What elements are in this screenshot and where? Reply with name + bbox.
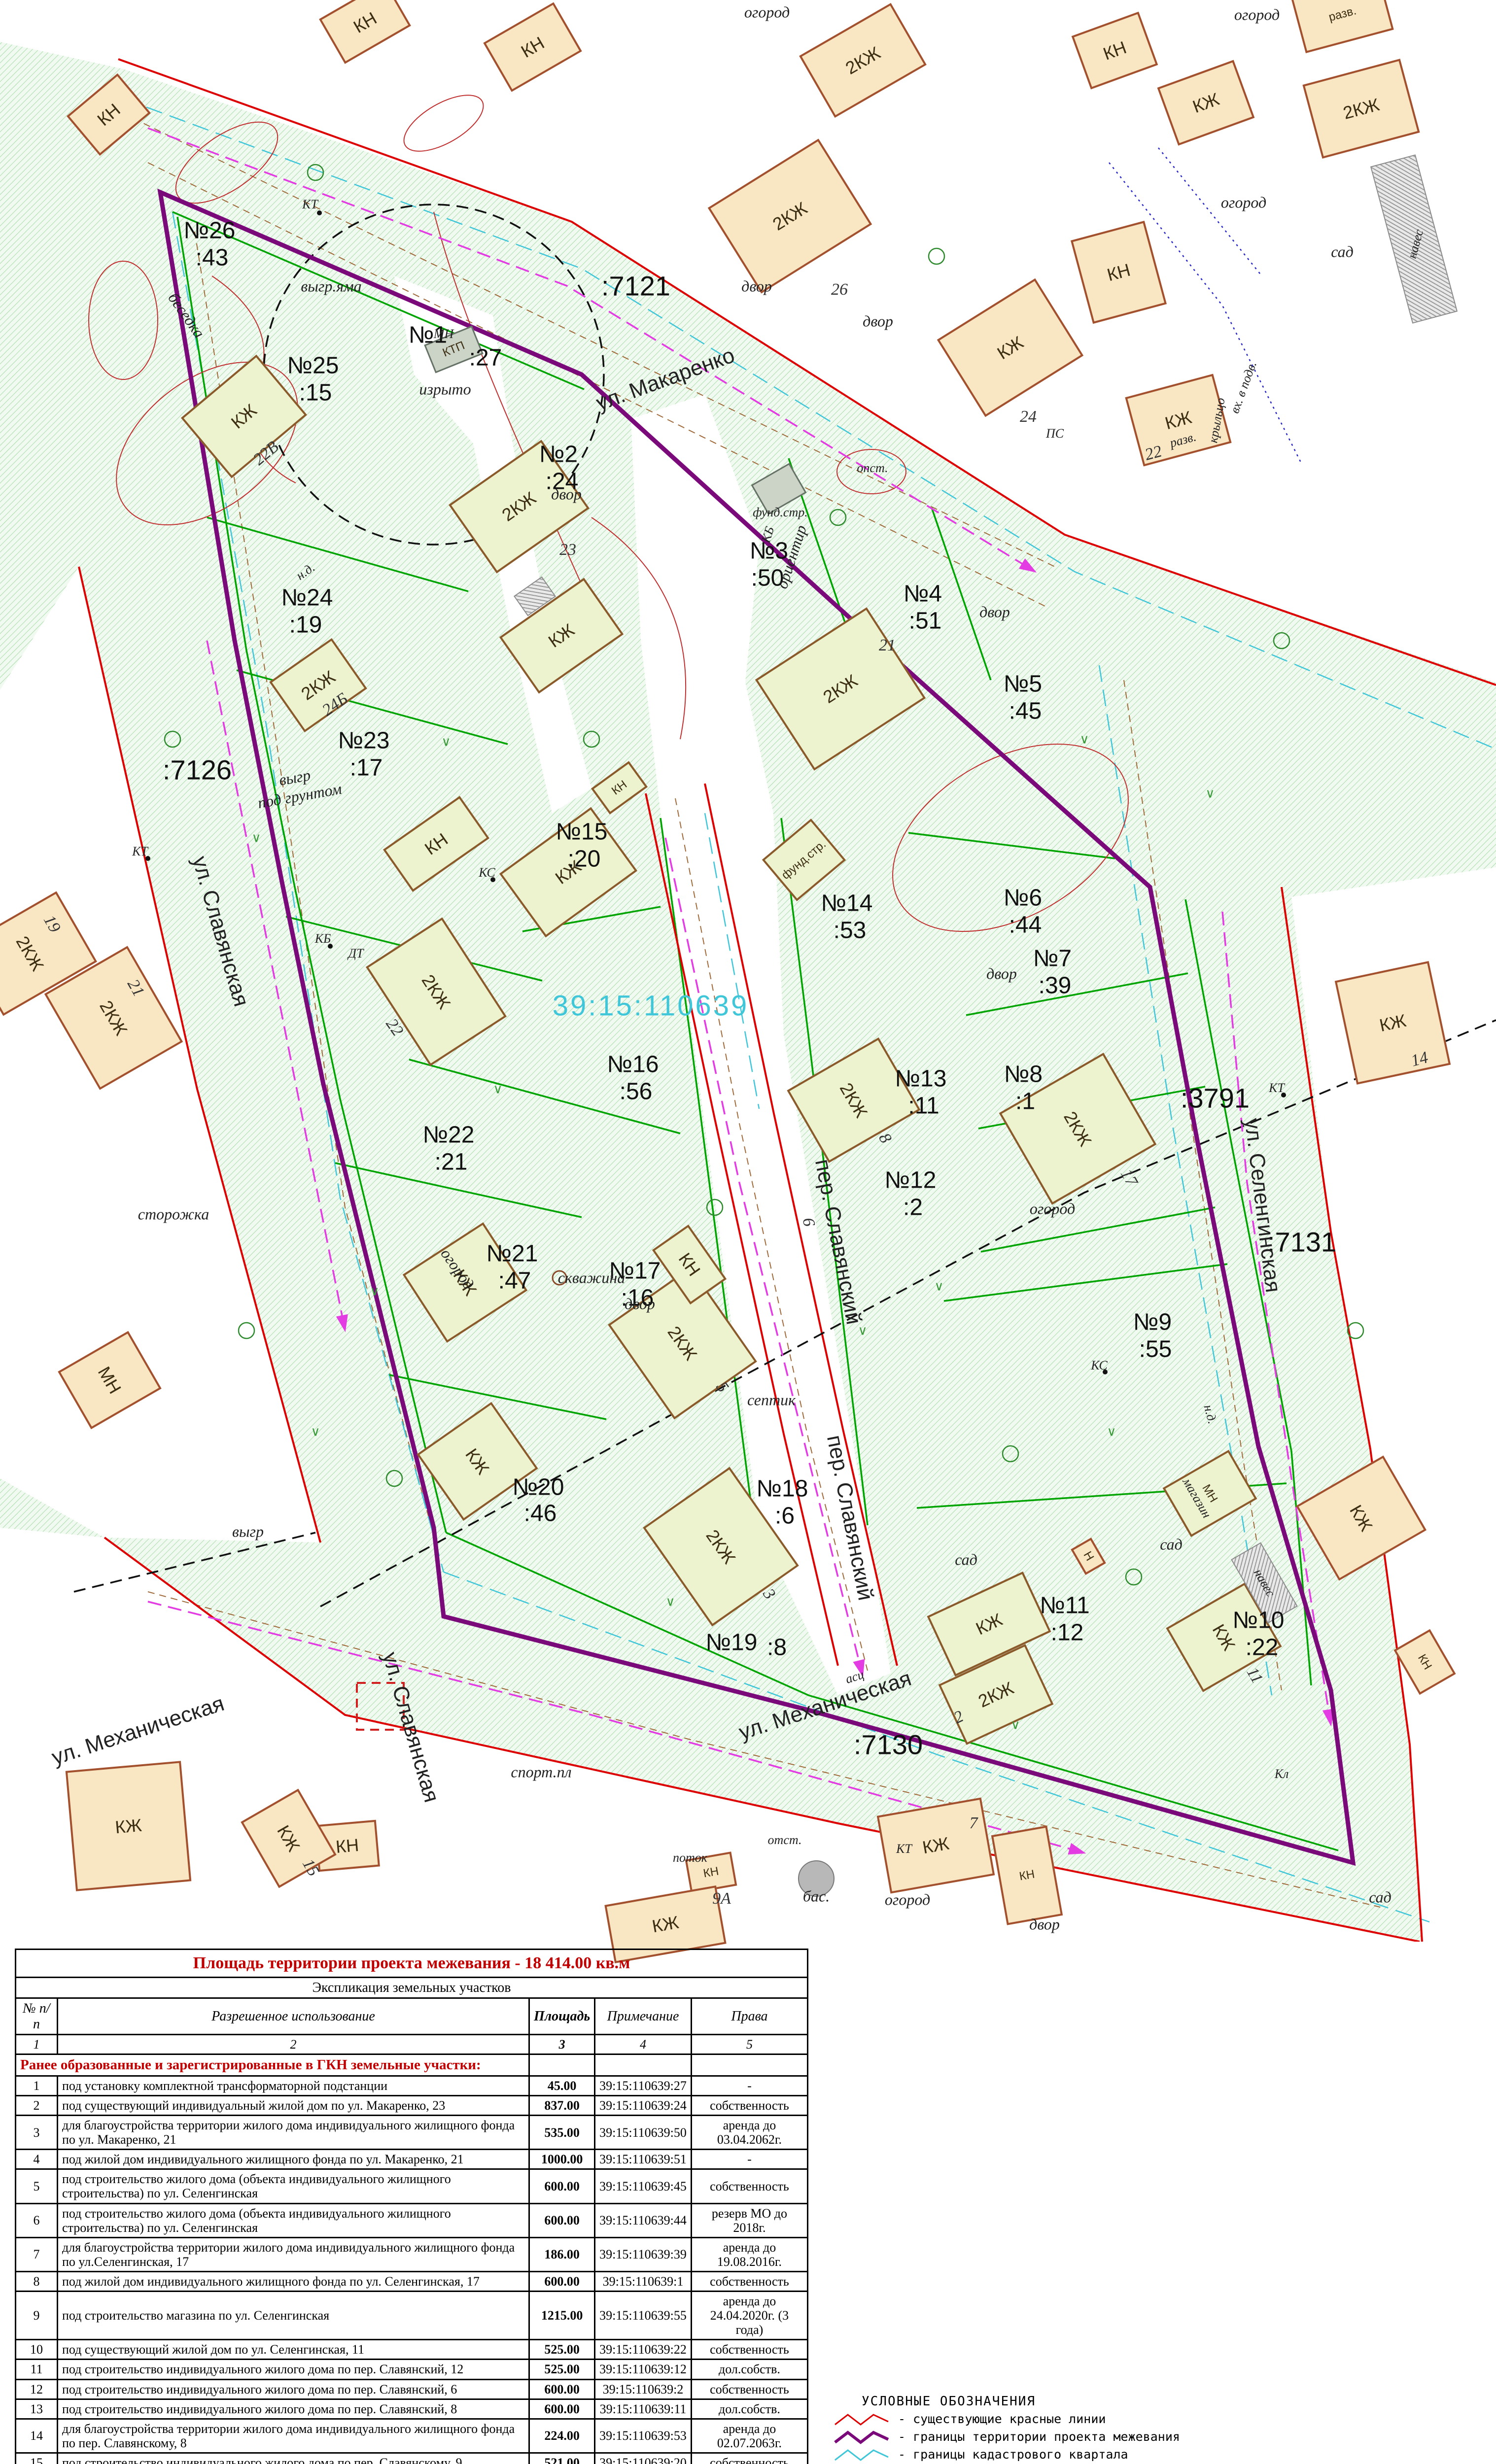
area: 1000.00 xyxy=(529,2150,595,2169)
area: 186.00 xyxy=(529,2237,595,2271)
cadastral-number: 39:15:110639:20 xyxy=(595,2453,692,2464)
cadastral-number: 39:15:110639:1 xyxy=(595,2271,692,2291)
legend-item-label: - границы кадастрового квартала xyxy=(898,2447,1128,2462)
rights: дол.собств. xyxy=(691,2360,807,2379)
rights: собственность xyxy=(691,2379,807,2399)
cadastral-number: 39:15:110639:11 xyxy=(595,2399,692,2419)
cadastral-number: 39:15:110639:24 xyxy=(595,2095,692,2115)
row-number: 11 xyxy=(16,2360,58,2379)
cadastral-number: 39:15:110639:12 xyxy=(595,2360,692,2379)
row-number: 13 xyxy=(16,2399,58,2419)
legend-item-label: - существующие красные линии xyxy=(898,2412,1106,2426)
area: 1215.00 xyxy=(529,2292,595,2340)
cadastral-number: 39:15:110639:50 xyxy=(595,2115,692,2149)
column-number: 5 xyxy=(691,2035,807,2054)
table-row: 5 под строительство жилого дома (объекта… xyxy=(16,2169,808,2203)
row-number: 5 xyxy=(16,2169,58,2203)
row-number: 2 xyxy=(16,2095,58,2115)
legend-title: УСЛОВНЫЕ ОБОЗНАЧЕНИЯ xyxy=(862,2394,1496,2409)
area: 600.00 xyxy=(529,2169,595,2203)
area: 600.00 xyxy=(529,2379,595,2399)
column-header: Примечание xyxy=(595,1998,692,2035)
cadastral-number: 39:15:110639:44 xyxy=(595,2203,692,2237)
area: 600.00 xyxy=(529,2399,595,2419)
rights: собственность xyxy=(691,2169,807,2203)
cadastral-number: 39:15:110639:55 xyxy=(595,2292,692,2340)
column-header: № п/п xyxy=(16,1998,58,2035)
cadastral-number: 39:15:110639:51 xyxy=(595,2150,692,2169)
table-row: 11 под строительство индивидуального жил… xyxy=(16,2360,808,2379)
table-row: 6 под строительство жилого дома (объекта… xyxy=(16,2203,808,2237)
area: 600.00 xyxy=(529,2203,595,2237)
permitted-use: под строительство жилого дома (объекта и… xyxy=(58,2169,529,2203)
table-title: Площадь территории проекта межевания - 1… xyxy=(16,1950,808,1978)
quarter-swatch xyxy=(833,2448,891,2461)
table-row: 12 под строительство индивидуального жил… xyxy=(16,2379,808,2399)
row-number: 1 xyxy=(16,2076,58,2095)
rights: аренда до 03.04.2062г. xyxy=(691,2115,807,2149)
legend: УСЛОВНЫЕ ОБОЗНАЧЕНИЯ - существующие крас… xyxy=(833,2394,1496,2464)
table-row: 8 под жилой дом индивидуального жилищног… xyxy=(16,2271,808,2291)
row-number: 3 xyxy=(16,2115,58,2149)
row-number: 10 xyxy=(16,2340,58,2360)
table-row: 13 под строительство индивидуального жил… xyxy=(16,2399,808,2419)
cadastral-number: 39:15:110639:27 xyxy=(595,2076,692,2095)
area: 45.00 xyxy=(529,2076,595,2095)
table-subtitle: Экспликация земельных участков xyxy=(16,1978,808,1998)
cadastral-number: 39:15:110639:45 xyxy=(595,2169,692,2203)
legend-item-label: - границы территории проекта межевания xyxy=(898,2430,1180,2444)
rights: дол.собств. xyxy=(691,2399,807,2419)
table-row: 15 под строительство индивидуального жил… xyxy=(16,2453,808,2464)
column-number: 2 xyxy=(58,2035,529,2054)
permitted-use: под строительство индивидуального жилого… xyxy=(58,2399,529,2419)
rights: аренда до 24.04.2020г. (3 года) xyxy=(691,2292,807,2340)
permitted-use: под установку комплектной трансформаторн… xyxy=(58,2076,529,2095)
row-number: 15 xyxy=(16,2453,58,2464)
cadastral-number: 39:15:110639:2 xyxy=(595,2379,692,2399)
row-number: 4 xyxy=(16,2150,58,2169)
area: 600.00 xyxy=(529,2271,595,2291)
legend-item: - границы кадастрового квартала xyxy=(833,2447,1496,2462)
table-row: Площадь территории проекта межевания - 1… xyxy=(16,1950,808,1978)
cadastral-number: 39:15:110639:39 xyxy=(595,2237,692,2271)
row-number: 8 xyxy=(16,2271,58,2291)
row-number: 7 xyxy=(16,2237,58,2271)
boundary-swatch xyxy=(833,2430,891,2443)
area: 224.00 xyxy=(529,2419,595,2453)
section-row: Ранее образованные и зарегистрированные … xyxy=(16,2054,529,2076)
sheet: { "map": { "cadastral_quarter": "39:15:1… xyxy=(0,0,1496,2464)
rights: собственность xyxy=(691,2095,807,2115)
permitted-use: под существующий индивидуальный жилой до… xyxy=(58,2095,529,2115)
pool-symbol xyxy=(799,1861,834,1896)
column-number: 3 xyxy=(529,2035,595,2054)
permitted-use: под строительство индивидуального жилого… xyxy=(58,2360,529,2379)
rights: аренда до 02.07.2063г. xyxy=(691,2419,807,2453)
area: 525.00 xyxy=(529,2360,595,2379)
table-row: 1 под установку комплектной трансформато… xyxy=(16,2076,808,2095)
cadastral-number: 39:15:110639:22 xyxy=(595,2340,692,2360)
column-header: Площадь xyxy=(529,1998,595,2035)
table-row: 7 для благоустройства территории жилого … xyxy=(16,2237,808,2271)
explication-table: Площадь территории проекта межевания - 1… xyxy=(15,1949,808,2464)
permitted-use: под строительство индивидуального жилого… xyxy=(58,2379,529,2399)
red-line-swatch xyxy=(833,2413,891,2426)
column-number: 4 xyxy=(595,2035,692,2054)
row-number: 6 xyxy=(16,2203,58,2237)
area: 837.00 xyxy=(529,2095,595,2115)
cadastral-map xyxy=(0,0,1496,1942)
rights: резерв МО до 2018г. xyxy=(691,2203,807,2237)
table-row: 9 под строительство магазина по ул. Селе… xyxy=(16,2292,808,2340)
table-row: 3 для благоустройства территории жилого … xyxy=(16,2115,808,2149)
rights: собственность xyxy=(691,2453,807,2464)
rights: аренда до 19.08.2016г. xyxy=(691,2237,807,2271)
permitted-use: под строительство индивидуального жилого… xyxy=(58,2453,529,2464)
permitted-use: под строительство магазина по ул. Селенг… xyxy=(58,2292,529,2340)
legend-item: - существующие красные линии xyxy=(833,2412,1496,2426)
permitted-use: под жилой дом индивидуального жилищного … xyxy=(58,2271,529,2291)
rights: - xyxy=(691,2076,807,2095)
table-row: 14 для благоустройства территории жилого… xyxy=(16,2419,808,2453)
table-row: Ранее образованные и зарегистрированные … xyxy=(16,2054,808,2076)
row-number: 12 xyxy=(16,2379,58,2399)
table-row: 4 под жилой дом индивидуального жилищног… xyxy=(16,2150,808,2169)
row-number: 9 xyxy=(16,2292,58,2340)
rights: собственность xyxy=(691,2340,807,2360)
table-row: 2 под существующий индивидуальный жилой … xyxy=(16,2095,808,2115)
table-row: 12345 xyxy=(16,2035,808,2054)
permitted-use: для благоустройства территории жилого до… xyxy=(58,2237,529,2271)
rights: собственность xyxy=(691,2271,807,2291)
table-row: 10 под существующий жилой дом по ул. Сел… xyxy=(16,2340,808,2360)
column-header: Разрешенное использование xyxy=(58,1998,529,2035)
table-row: Экспликация земельных участков xyxy=(16,1978,808,1998)
column-number: 1 xyxy=(16,2035,58,2054)
row-number: 14 xyxy=(16,2419,58,2453)
area: 521.00 xyxy=(529,2453,595,2464)
permitted-use: для благоустройства территории жилого до… xyxy=(58,2419,529,2453)
table-row: № п/пРазрешенное использованиеПлощадьПри… xyxy=(16,1998,808,2035)
permitted-use: под жилой дом индивидуального жилищного … xyxy=(58,2150,529,2169)
area: 525.00 xyxy=(529,2340,595,2360)
cadastral-number: 39:15:110639:53 xyxy=(595,2419,692,2453)
legend-item: - границы территории проекта межевания xyxy=(833,2430,1496,2444)
permitted-use: под существующий жилой дом по ул. Селенг… xyxy=(58,2340,529,2360)
area: 535.00 xyxy=(529,2115,595,2149)
column-header: Права xyxy=(691,1998,807,2035)
permitted-use: под строительство жилого дома (объекта и… xyxy=(58,2203,529,2237)
rights: - xyxy=(691,2150,807,2169)
permitted-use: для благоустройства территории жилого до… xyxy=(58,2115,529,2149)
